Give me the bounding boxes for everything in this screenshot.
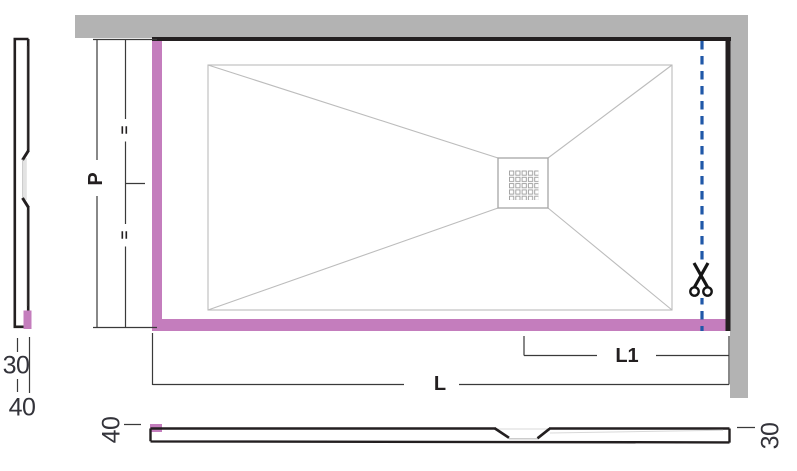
tray-edge-right <box>726 37 731 331</box>
trim-bottom <box>152 319 730 331</box>
bottom-profile-right-height-value: 30 <box>759 423 784 450</box>
trim-left-profile <box>24 311 32 330</box>
wall-top <box>75 15 748 38</box>
diagram-canvas: P = = L1 L 30 40 40 30 <box>0 0 797 471</box>
dimension-label-length: L <box>434 374 446 394</box>
tray-top-view <box>152 37 731 331</box>
dimension-bottom-profile-ticks <box>124 425 755 428</box>
tray-edge-top <box>152 37 731 41</box>
drain-grate <box>498 158 548 208</box>
left-profile-height-value: 40 <box>9 396 36 421</box>
left-profile-thickness-value: 30 <box>3 354 30 379</box>
scissors-icon <box>690 262 713 298</box>
left-profile-view <box>15 39 32 329</box>
equal-mark-upper: = <box>118 126 133 135</box>
basin-slope-lines <box>208 65 672 310</box>
dimension-label-depth: P <box>86 172 106 185</box>
bottom-profile-view <box>150 424 730 443</box>
wall-right <box>730 15 748 398</box>
bottom-profile-left-height-value: 40 <box>100 417 125 444</box>
equal-mark-lower: = <box>118 231 133 240</box>
trim-left <box>152 38 162 331</box>
dimension-label-cut-length: L1 <box>615 346 638 366</box>
